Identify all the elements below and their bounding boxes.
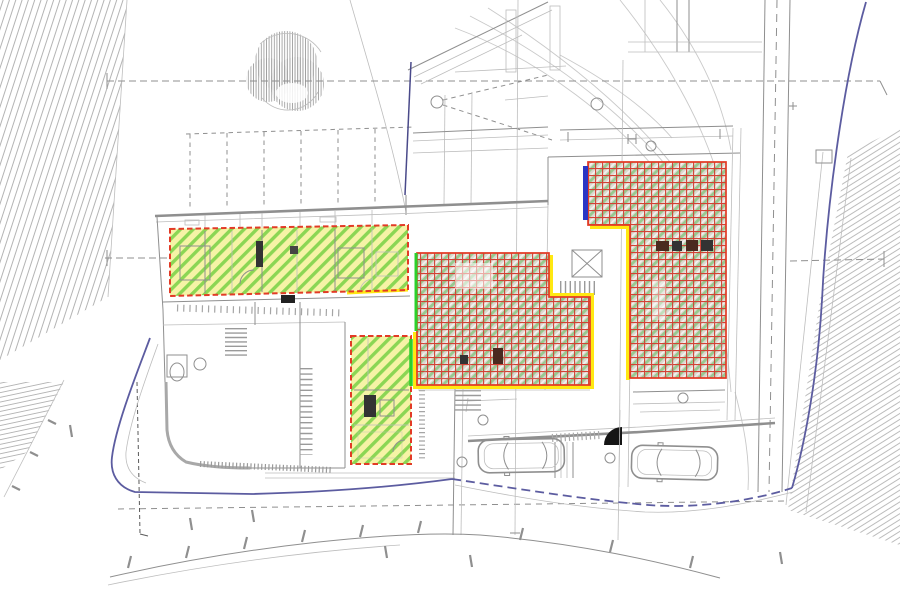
car-2: [631, 442, 718, 483]
unit-east-crosshatch: [583, 162, 726, 380]
parking-stall-lines: [186, 127, 414, 208]
unit-central-crosshatch: [415, 253, 592, 387]
tree-icon: [246, 31, 324, 111]
site-plan-svg: [0, 0, 900, 597]
door-threshold: [281, 295, 295, 303]
car-1: [478, 435, 565, 475]
cross-mark-icon: [789, 102, 797, 110]
navy-wall-edge: [405, 62, 411, 195]
slope-hatch-bottomright: [788, 128, 900, 545]
slope-hatch-bottomleft: [0, 382, 64, 470]
parked-cars: [478, 435, 718, 483]
kitchen-icon: [364, 395, 376, 417]
unit-south-green: [351, 336, 411, 464]
sink-icon: [194, 358, 206, 370]
survey-point-icon: [431, 96, 443, 108]
unit-west-green: [170, 225, 408, 296]
slope-hatch-topleft: [0, 0, 127, 360]
survey-point-icon: [591, 98, 603, 110]
railing: [177, 308, 343, 313]
floor-plan-canvas: [0, 0, 900, 597]
blue-wall-marker: [583, 166, 588, 220]
